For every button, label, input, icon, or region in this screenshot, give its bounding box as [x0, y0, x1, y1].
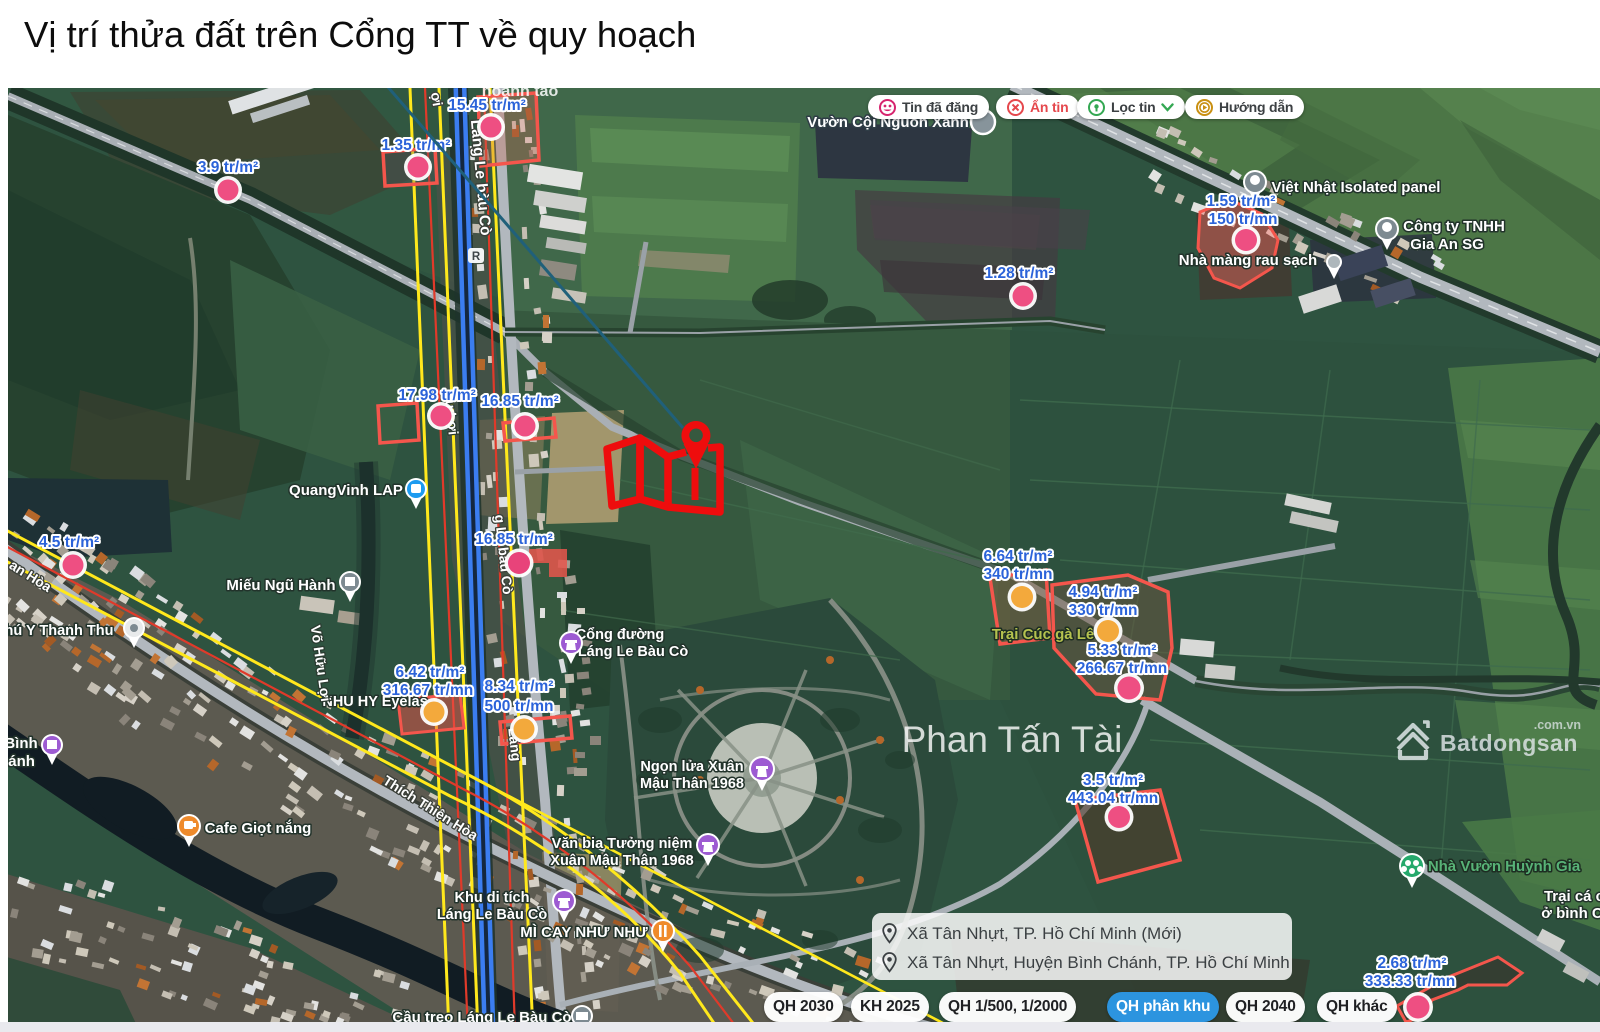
svg-text:150 tr/mn: 150 tr/mn [1209, 211, 1278, 228]
svg-text:Công ty TNHH: Công ty TNHH [1403, 218, 1505, 235]
svg-text:Phan Tấn Tài: Phan Tấn Tài [902, 719, 1123, 760]
svg-text:333.33 tr/mn: 333.33 tr/mn [1365, 973, 1455, 990]
svg-text:16.85 tr/m²: 16.85 tr/m² [481, 393, 559, 410]
svg-text:Ngọn lửa Xuân: Ngọn lửa Xuân [640, 759, 743, 775]
svg-text:Việt Nhật Isolated panel: Việt Nhật Isolated panel [1272, 179, 1441, 196]
svg-text:ở bình C: ở bình C [1541, 905, 1600, 922]
svg-text:5.33 tr/m²: 5.33 tr/m² [1088, 642, 1157, 659]
svg-text:Batdongsan: Batdongsan [1440, 730, 1578, 756]
svg-text:15.45 tr/m²: 15.45 tr/m² [448, 97, 526, 114]
svg-text:4.5 tr/m²: 4.5 tr/m² [39, 534, 99, 551]
svg-text:316.67 tr/mn: 316.67 tr/mn [383, 682, 473, 699]
svg-text:Cafe Giọt nắng: Cafe Giọt nắng [205, 819, 312, 837]
svg-text:.com.vn: .com.vn [1534, 718, 1581, 732]
svg-text:hú Y Thanh Thu: hú Y Thanh Thu [4, 623, 113, 639]
svg-text:340 tr/mn: 340 tr/mn [984, 566, 1053, 583]
svg-text:Khu di tích: Khu di tích [455, 890, 530, 906]
svg-text:1.59 tr/m²: 1.59 tr/m² [1207, 193, 1276, 210]
svg-text:3.9 tr/m²: 3.9 tr/m² [198, 159, 258, 176]
svg-text:500 tr/mn: 500 tr/mn [485, 698, 554, 715]
svg-text:Cổng đường: Cổng đường [576, 627, 664, 643]
svg-text:17.98 tr/m²: 17.98 tr/m² [398, 387, 476, 404]
svg-text:2.68 tr/m²: 2.68 tr/m² [1378, 955, 1447, 972]
svg-text:16.85 tr/m²: 16.85 tr/m² [475, 531, 553, 548]
svg-text:Miếu Ngũ Hành: Miếu Ngũ Hành [226, 577, 335, 594]
svg-text:hánh: hánh [0, 753, 35, 770]
svg-text:Gia An SG: Gia An SG [1410, 236, 1484, 253]
svg-text:330 tr/mn: 330 tr/mn [1069, 602, 1138, 619]
svg-text:443.04 tr/mn: 443.04 tr/mn [1068, 790, 1158, 807]
svg-text:3.5 tr/m²: 3.5 tr/m² [1083, 772, 1143, 789]
svg-text:Láng Le Bàu Cò: Láng Le Bàu Cò [437, 907, 548, 923]
svg-text:Nhà màng rau sạch: Nhà màng rau sạch [1179, 252, 1317, 269]
svg-text:QuangVinh LAP: QuangVinh LAP [289, 482, 403, 499]
svg-text:Nhà Vườn Huỳnh Gia: Nhà Vườn Huỳnh Gia [1428, 858, 1581, 875]
svg-text:Xuân Mậu Thân 1968: Xuân Mậu Thân 1968 [550, 853, 693, 869]
svg-text:Bình: Bình [4, 735, 37, 752]
svg-text:ợi: ợi [428, 91, 446, 107]
svg-text:8.34 tr/m²: 8.34 tr/m² [485, 678, 554, 695]
svg-text:6.42 tr/m²: 6.42 tr/m² [396, 664, 465, 681]
svg-text:1.28 tr/m²: 1.28 tr/m² [985, 265, 1054, 282]
svg-text:Văn bia Tưởng niệm: Văn bia Tưởng niệm [552, 836, 693, 852]
svg-text:6.64 tr/m²: 6.64 tr/m² [984, 548, 1053, 565]
svg-text:4.94 tr/m²: 4.94 tr/m² [1069, 584, 1138, 601]
svg-text:Trại cá c: Trại cá c [1544, 888, 1600, 905]
svg-text:MÌ CAY NHƯ NHƯ: MÌ CAY NHƯ NHƯ [520, 924, 648, 941]
svg-text:R: R [472, 251, 481, 263]
svg-text:266.67 tr/mn: 266.67 tr/mn [1077, 660, 1167, 677]
svg-text:Mậu Thân 1968: Mậu Thân 1968 [640, 776, 744, 792]
svg-text:Láng Le Bàu Cò: Láng Le Bàu Cò [578, 644, 689, 660]
